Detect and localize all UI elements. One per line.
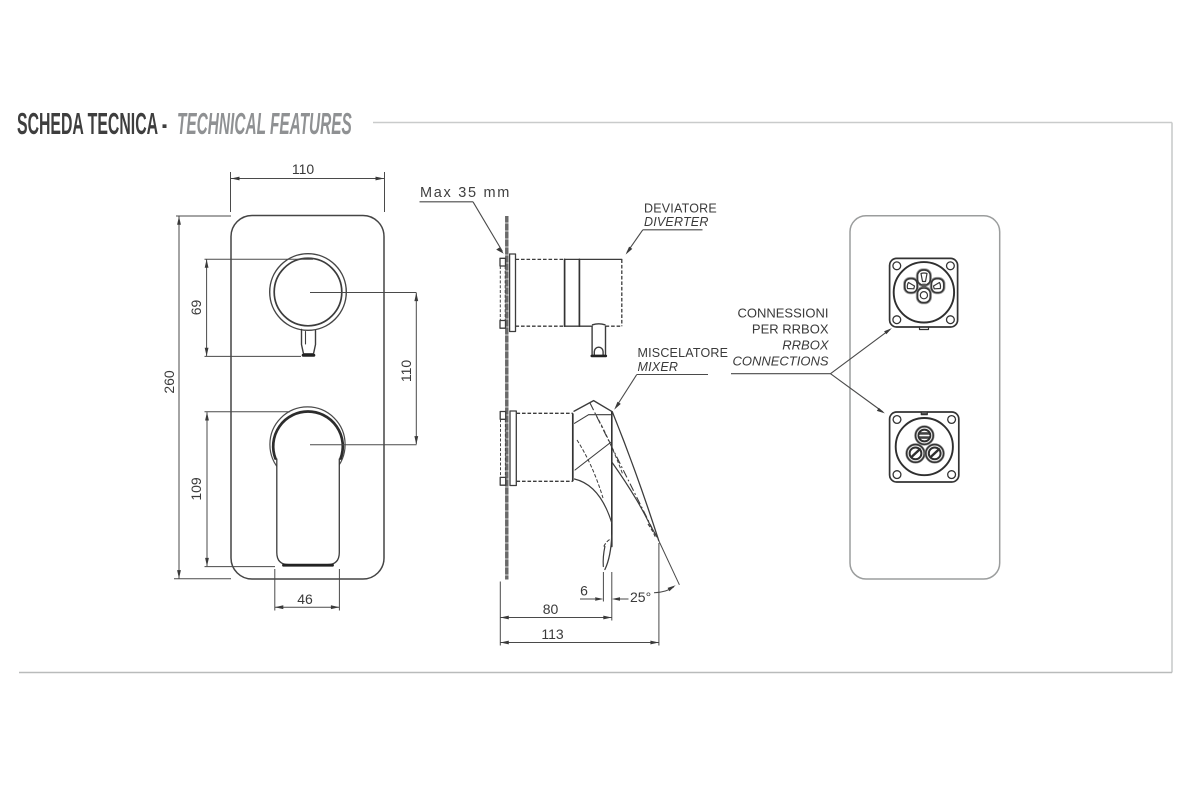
svg-text:110: 110 bbox=[398, 360, 414, 383]
svg-text:109: 109 bbox=[188, 477, 204, 501]
svg-text:110: 110 bbox=[292, 161, 315, 177]
svg-text:MIXER: MIXER bbox=[638, 360, 679, 374]
svg-text:260: 260 bbox=[161, 370, 177, 394]
svg-text:113: 113 bbox=[541, 626, 564, 642]
svg-text:69: 69 bbox=[188, 300, 204, 316]
svg-text:DEVIATORE: DEVIATORE bbox=[644, 202, 717, 216]
svg-text:46: 46 bbox=[297, 591, 313, 607]
svg-text:MISCELATORE: MISCELATORE bbox=[638, 346, 729, 360]
svg-text:6: 6 bbox=[580, 583, 588, 599]
svg-text:SCHEDA TECNICA -: SCHEDA TECNICA - bbox=[17, 108, 167, 142]
svg-text:DIVERTER: DIVERTER bbox=[644, 215, 709, 229]
svg-text:Max 35 mm: Max 35 mm bbox=[420, 185, 511, 201]
svg-text:25°: 25° bbox=[630, 589, 651, 605]
svg-text:80: 80 bbox=[543, 601, 559, 617]
svg-text:TECHNICAL FEATURES: TECHNICAL FEATURES bbox=[177, 107, 352, 141]
svg-text:CONNESSIONI: CONNESSIONI bbox=[737, 306, 828, 321]
svg-text:PER RRBOX: PER RRBOX bbox=[752, 322, 829, 337]
svg-text:RRBOX: RRBOX bbox=[782, 338, 830, 353]
svg-text:CONNECTIONS: CONNECTIONS bbox=[732, 354, 828, 369]
